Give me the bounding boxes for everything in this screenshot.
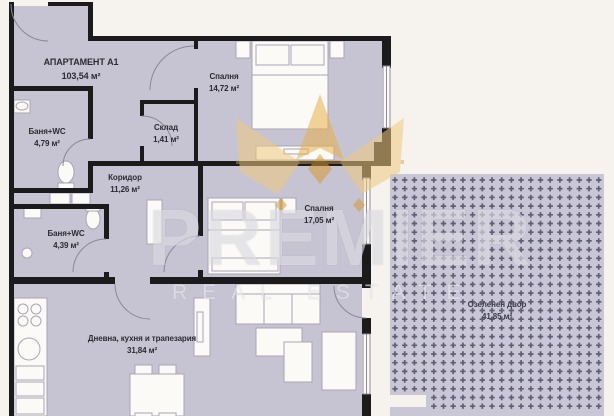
room-area: 4,79 м² bbox=[14, 138, 80, 150]
room-area: 11,26 м² bbox=[95, 184, 155, 196]
room-name: Спалня bbox=[289, 203, 349, 215]
pillow bbox=[291, 45, 324, 65]
apartment-area: 103,54 м² bbox=[29, 70, 133, 84]
wall-bedroom2-left bbox=[198, 166, 203, 236]
room-label-yard: Озеленен двор 41,85 м² bbox=[439, 299, 555, 323]
nightstand bbox=[330, 41, 344, 58]
pillow bbox=[256, 45, 289, 65]
chair bbox=[159, 365, 176, 374]
appliance bbox=[72, 193, 90, 204]
room-label-living: Дневна, кухня и трапезария 31,84 м² bbox=[57, 333, 227, 357]
wardrobe bbox=[147, 200, 162, 244]
chair bbox=[135, 365, 152, 374]
room-name: Спалня bbox=[194, 71, 254, 83]
sofa bbox=[236, 284, 320, 324]
wall-bath1-top bbox=[9, 86, 93, 91]
floor-plan-canvas: PREMIER REAL ESTATE АПАРТАМЕНТ А1 103,54… bbox=[0, 0, 614, 416]
stove-burner bbox=[31, 316, 41, 326]
wall-bath2-top bbox=[9, 204, 109, 209]
stove-burner bbox=[18, 316, 28, 326]
armchair bbox=[284, 342, 312, 382]
stove-burner bbox=[18, 304, 28, 314]
dresser bbox=[212, 258, 278, 271]
wall-left bbox=[9, 6, 14, 416]
wall-bath1-bottom bbox=[9, 188, 93, 193]
kitchen-sink bbox=[18, 338, 40, 360]
room-label-bath1: Баня+WC 4,79 м² bbox=[14, 126, 80, 150]
room-name: Озеленен двор bbox=[439, 299, 555, 311]
cabinet bbox=[322, 332, 356, 390]
pillow bbox=[212, 202, 243, 220]
room-name: Дневна, кухня и трапезария bbox=[57, 333, 227, 345]
toilet bbox=[58, 161, 74, 183]
room-area: 31,84 м² bbox=[57, 345, 227, 357]
apartment-name: АПАРТАМЕНТ А1 bbox=[29, 56, 133, 70]
room-area: 17,05 м² bbox=[289, 215, 349, 227]
room-label-corridor: Коридор 11,26 м² bbox=[95, 172, 155, 196]
toilet bbox=[86, 209, 100, 229]
wall-top-left bbox=[48, 2, 93, 6]
shower-head bbox=[22, 248, 32, 258]
washing-machine bbox=[50, 193, 70, 204]
apartment-title: АПАРТАМЕНТ А1 103,54 м² bbox=[29, 56, 133, 83]
nightstand bbox=[236, 41, 250, 58]
kitchen-cabinet bbox=[16, 398, 44, 414]
stove-burner bbox=[31, 304, 41, 314]
room-label-storage: Склад 1,41 м² bbox=[138, 122, 194, 146]
room-name: Баня+WC bbox=[34, 228, 98, 240]
room-name: Склад bbox=[138, 122, 194, 134]
bathroom-sink-bowl bbox=[16, 102, 28, 110]
room-area: 4,39 м² bbox=[34, 240, 98, 252]
room-name: Баня+WC bbox=[14, 126, 80, 138]
wall-top-main bbox=[88, 36, 391, 41]
kitchen-cabinet bbox=[16, 366, 44, 380]
pillow bbox=[245, 202, 276, 220]
room-label-bath2: Баня+WC 4,39 м² bbox=[34, 228, 98, 252]
room-label-bedroom2: Спалня 17,05 м² bbox=[289, 203, 349, 227]
wall-living-top bbox=[9, 277, 115, 284]
room-name: Коридор bbox=[95, 172, 155, 184]
yard-notch bbox=[388, 395, 426, 407]
room-area: 41,85 м² bbox=[439, 311, 555, 323]
yard-area bbox=[388, 174, 604, 416]
room-area: 1,41 м² bbox=[138, 134, 194, 146]
wall-storage-top bbox=[140, 100, 198, 104]
kitchen-cabinet bbox=[16, 382, 44, 396]
wall-right bbox=[382, 36, 391, 68]
dining-table bbox=[130, 374, 184, 416]
room-label-bedroom1: Спалня 14,72 м² bbox=[194, 71, 254, 95]
room-area: 14,72 м² bbox=[194, 83, 254, 95]
